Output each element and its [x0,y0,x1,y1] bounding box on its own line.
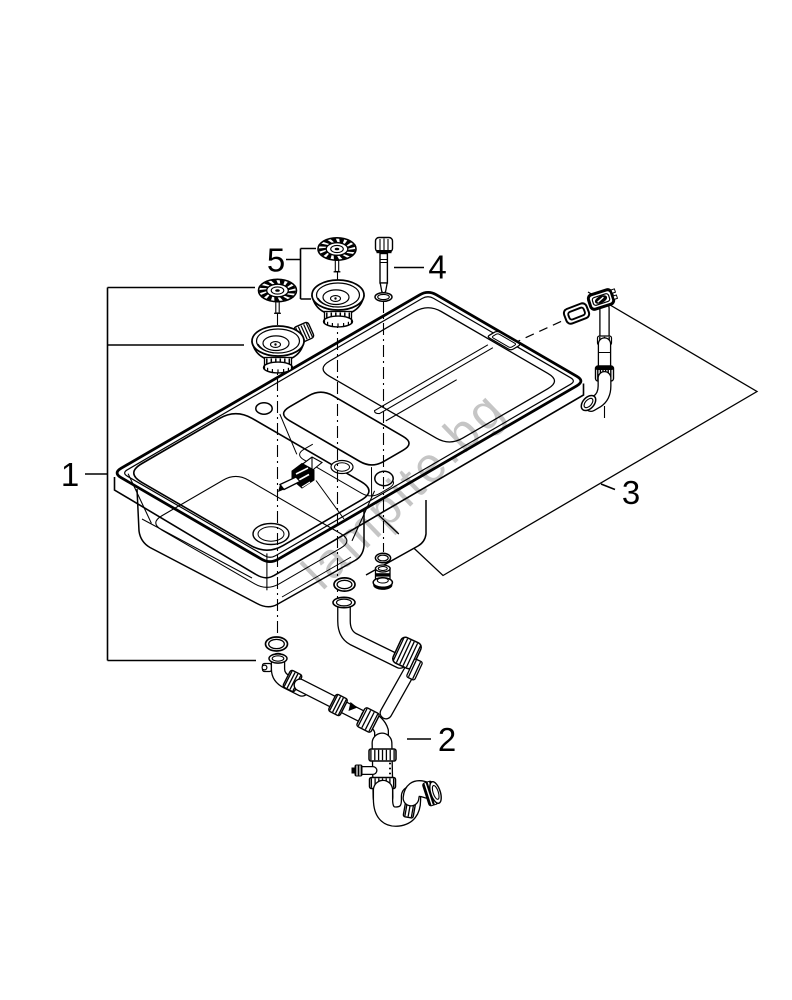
svg-text:1: 1 [61,456,79,493]
svg-text:2: 2 [438,721,456,758]
svg-text:3: 3 [622,474,640,511]
svg-text:4: 4 [428,249,446,286]
svg-text:5: 5 [267,242,285,279]
